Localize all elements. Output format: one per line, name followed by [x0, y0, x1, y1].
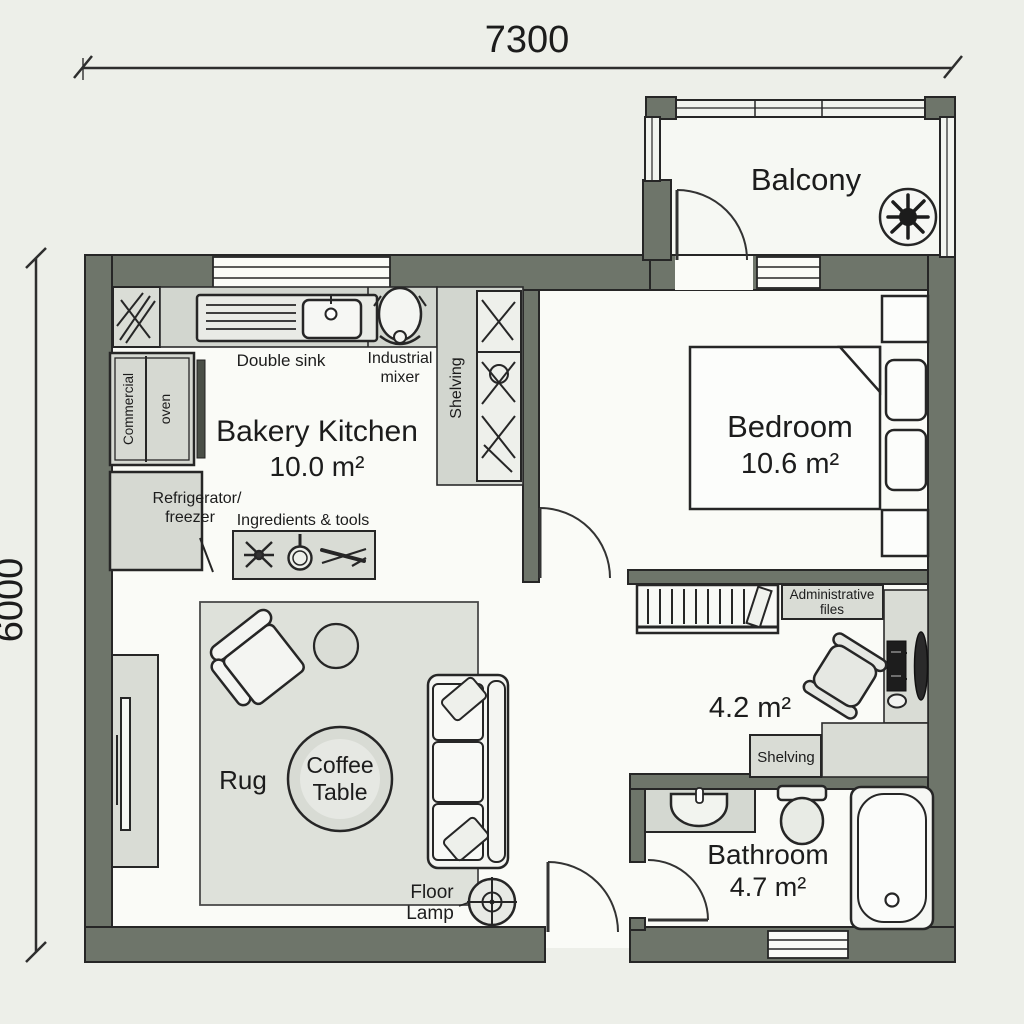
mixer-label-1: Industrial [368, 350, 433, 367]
coffee-table-label-1: Coffee [306, 752, 373, 778]
sofa-cushion [433, 742, 483, 802]
kitchen-shelving-label: Shelving [448, 357, 465, 418]
floor-lamp-label-1: Floor [410, 882, 454, 903]
double-sink-label: Double sink [237, 351, 326, 370]
mixer-label-2: mixer [380, 369, 420, 386]
tv [121, 698, 130, 830]
toilet [778, 786, 826, 844]
ingredients-label: Ingredients & tools [237, 512, 370, 529]
railing-post-right [925, 97, 955, 119]
dimension-left-label: 6000 [0, 558, 31, 643]
plant-icon [880, 189, 936, 245]
fridge-label-1: Refrigerator/ [153, 490, 242, 507]
tv-console [112, 655, 158, 867]
drain [886, 894, 899, 907]
wall-bathroom-left-stub [630, 918, 645, 930]
faucet [696, 788, 703, 803]
oven-label-1: Commercial [121, 373, 136, 445]
railing-post-left [646, 97, 676, 119]
pillow [886, 430, 926, 490]
bedroom-area: 10.6 m² [741, 448, 840, 480]
rug-label: Rug [219, 765, 267, 795]
office-area: 4.2 m² [709, 692, 792, 724]
mouse [888, 695, 906, 708]
floor-lamp-label-2: Lamp [406, 903, 454, 924]
wall-bedroom-office [628, 570, 928, 584]
balcony-name: Balcony [751, 162, 862, 197]
sofa-back [488, 681, 505, 862]
wall-bottom-left [85, 927, 545, 962]
wall-balcony-stub [643, 180, 671, 260]
floor-plan: 7300 6000 [0, 0, 1024, 1024]
bathroom-name: Bathroom [707, 839, 828, 870]
coffee-table-label-2: Table [313, 779, 368, 805]
admin-files-label-1: Administrative [790, 587, 875, 602]
bathroom-area: 4.7 m² [730, 872, 807, 902]
wall-left [85, 255, 112, 962]
admin-files-label-2: files [820, 602, 844, 617]
oven-label-2: oven [157, 394, 173, 424]
dimension-top-label: 7300 [485, 19, 570, 61]
wall-kitchen-interior [523, 290, 539, 582]
pouf [314, 624, 358, 668]
bedroom-window [757, 257, 820, 288]
bathtub [851, 787, 933, 929]
kitchen-area: 10.0 m² [270, 451, 365, 482]
nightstand-top [882, 296, 928, 342]
fridge-label-2: freezer [165, 509, 215, 526]
bathroom-vanity [645, 788, 755, 832]
office-shelving-label: Shelving [757, 749, 815, 766]
kitchen-window [213, 257, 390, 288]
kitchen-name: Bakery Kitchen [216, 415, 418, 448]
ingredients-tools-station [233, 531, 375, 579]
double-sink [197, 295, 377, 341]
balcony-door-opening [675, 256, 753, 290]
keyboard [887, 641, 906, 691]
wall-bathroom-left [630, 789, 645, 862]
bathroom-window [768, 931, 848, 958]
monitor [915, 632, 928, 700]
bookshelf [637, 585, 778, 633]
oven-side-panel [197, 360, 205, 458]
sofa [428, 675, 508, 868]
bedroom-name: Bedroom [727, 409, 853, 444]
pillow [886, 360, 926, 420]
kitchen-corner-cabinet [113, 287, 160, 347]
nightstand-bottom [882, 510, 928, 556]
